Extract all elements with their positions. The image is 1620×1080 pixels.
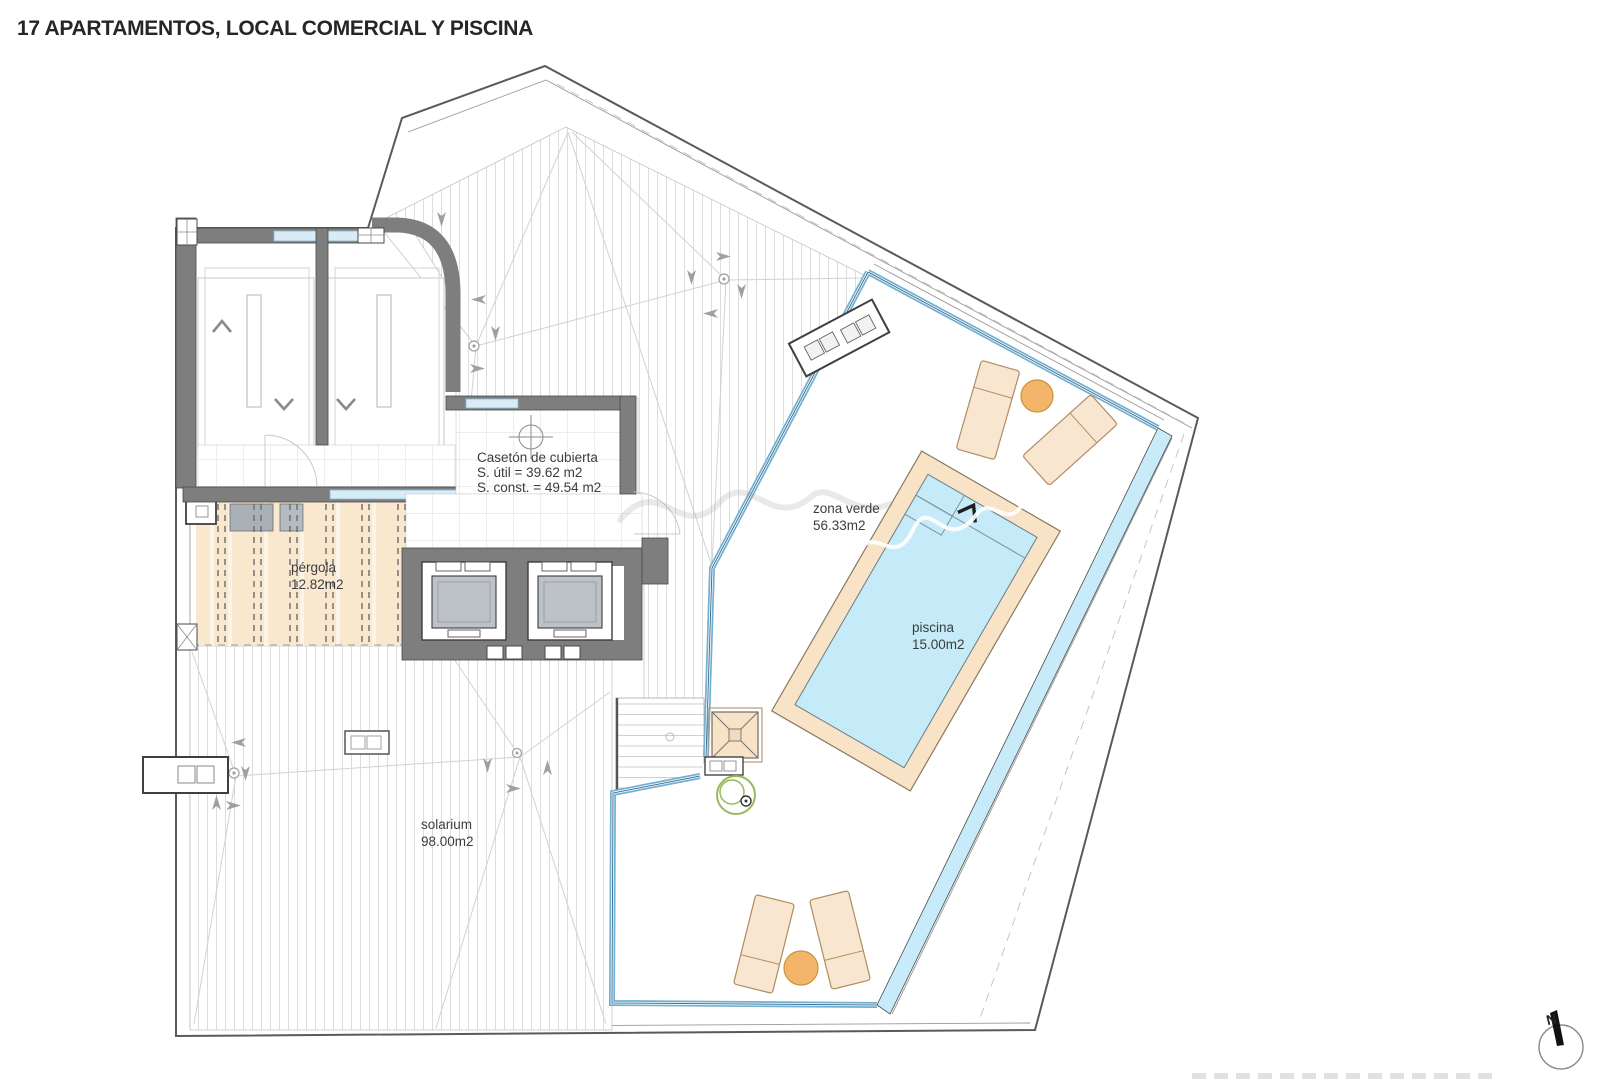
caseton-label: Casetón de cubierta	[477, 450, 598, 465]
window-strip	[466, 399, 518, 408]
pergola-area-value: 12.82m2	[291, 577, 344, 592]
stair-stringer	[377, 295, 391, 407]
stair-stringer	[247, 295, 261, 407]
caseton-util: S. útil = 39.62 m2	[477, 465, 582, 480]
pergola-label: pérgola	[291, 560, 337, 575]
solarium-area-value: 98.00m2	[421, 834, 474, 849]
shower-plate	[708, 708, 762, 762]
solarium-area	[143, 646, 612, 1030]
column-marker	[177, 219, 197, 245]
drain-bench	[705, 757, 743, 775]
solarium-label: solarium	[421, 817, 472, 832]
zona-verde-area-value: 56.33m2	[813, 518, 866, 533]
cropped-caption-strip	[1192, 1073, 1492, 1079]
pergola-ac-unit	[230, 504, 273, 531]
pergola-ac-unit	[280, 504, 303, 531]
elevator-car	[432, 576, 496, 628]
floor-plan-page: 17 APARTAMENTOS, LOCAL COMERCIAL Y PISCI…	[0, 0, 1620, 1080]
side-table	[784, 951, 818, 985]
column-marker	[177, 624, 197, 650]
roof-scupper-box	[143, 757, 228, 793]
column-marker	[358, 228, 384, 243]
pergola-wall-box	[186, 500, 216, 524]
side-table	[1021, 380, 1053, 412]
elevator-car	[538, 576, 602, 628]
compass: N	[1539, 1010, 1583, 1069]
elevator-shaft	[422, 562, 506, 640]
roof-vent-box	[345, 731, 389, 754]
elevator-shaft	[528, 562, 612, 640]
zona-verde-label: zona verde	[813, 501, 880, 516]
piscina-label: piscina	[912, 620, 955, 635]
floor-plan-drawing: Casetón de cubierta S. útil = 39.62 m2 S…	[0, 0, 1620, 1080]
piscina-area-value: 15.00m2	[912, 637, 965, 652]
elevator-block	[402, 538, 668, 660]
caseton-const: S. const. = 49.54 m2	[477, 480, 601, 495]
